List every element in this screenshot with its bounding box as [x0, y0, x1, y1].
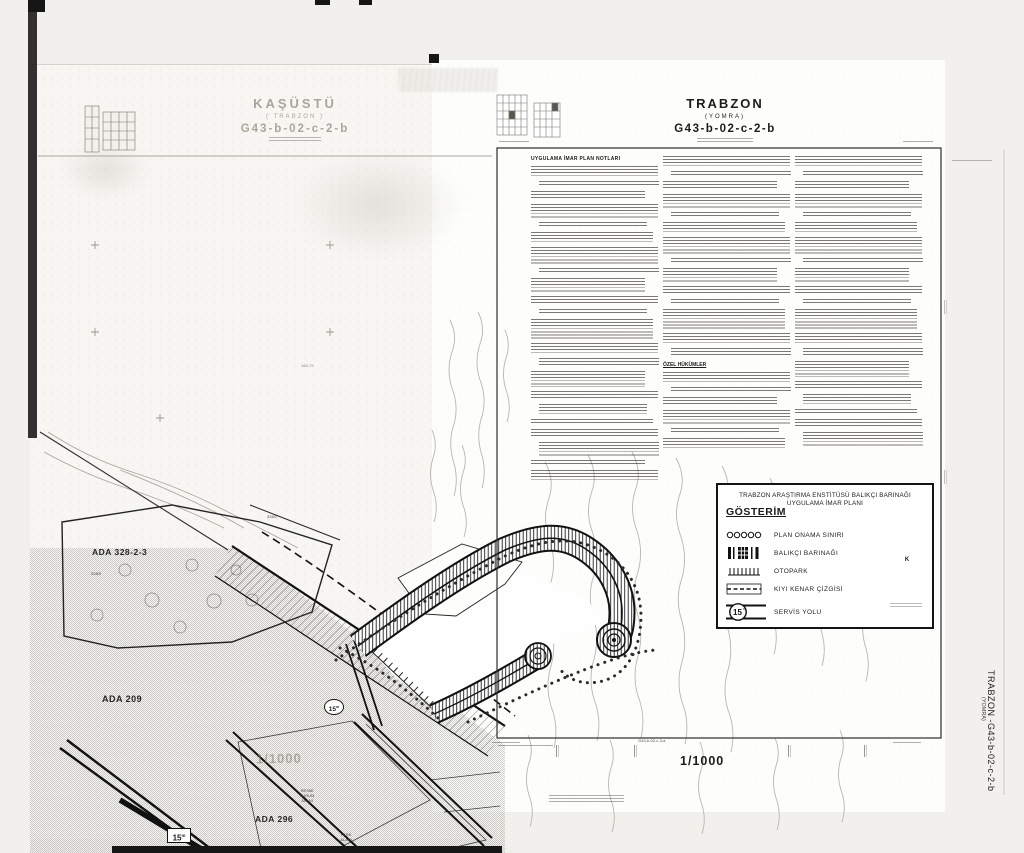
greeked-paragraph: [671, 387, 791, 393]
edge-label-region: (YOMRA): [986, 697, 1010, 703]
parcel-label: 328/3: [91, 572, 101, 577]
plan-notes-text: [531, 166, 659, 481]
greeked-paragraph: [539, 358, 659, 367]
scan-mark: [359, 0, 372, 5]
greeked-paragraph: [663, 309, 785, 329]
border-tick-label: [556, 745, 559, 757]
plan-notes-text: [663, 156, 791, 357]
legend-label: SERVİS YOLU: [774, 609, 822, 616]
greeked-paragraph: [663, 194, 790, 208]
greeked-paragraph: [795, 361, 909, 377]
margin-tick-label: [944, 300, 947, 314]
ada-209-label: ADA 209: [102, 694, 142, 704]
scan-seam: [398, 68, 498, 92]
greeked-paragraph: [671, 171, 791, 177]
greeked-paragraph: [531, 371, 645, 387]
corner-coordinate: [499, 141, 529, 144]
greeked-paragraph: [539, 442, 659, 456]
legend-item-plan-onama: PLAN ONAMA SINIRI: [726, 527, 844, 543]
greeked-paragraph: [803, 432, 923, 446]
greeked-paragraph: [539, 181, 659, 187]
greeked-paragraph: [795, 333, 922, 344]
greeked-paragraph: [531, 247, 658, 264]
greeked-paragraph: [539, 309, 647, 315]
scanned-imar-plan: KAŞÜSTÜ ( TRABZON ) G43-b-02-c-2-b TRABZ…: [0, 0, 1024, 853]
road-width-value: 15: [329, 706, 336, 713]
greeked-paragraph: [795, 309, 917, 329]
greeked-paragraph: [663, 237, 790, 254]
greeked-paragraph: [539, 222, 647, 228]
scan-smudge: [290, 150, 465, 260]
harbor-road-width-badge: 15m: [324, 699, 344, 715]
greeked-paragraph: [663, 286, 790, 295]
greeked-paragraph: [795, 194, 922, 208]
otopark-symbol: [726, 563, 766, 579]
plan-notes-text: [663, 372, 791, 449]
legend-item-kiyi-kenar: KIYI KENAR ÇİZGİSİ: [726, 581, 843, 597]
legend-item-balikci-barinagi: BALIKÇI BARINAĞI: [726, 545, 838, 561]
footnote: [549, 795, 624, 802]
left-sheet-region: ( TRABZON ): [210, 114, 380, 120]
legend-heading: GÖSTERİM: [726, 506, 786, 518]
special-provisions-heading: ÖZEL HÜKÜMLER: [663, 362, 791, 368]
left-sheet-subnote: [269, 137, 321, 141]
greeked-paragraph: [531, 191, 645, 200]
corner-coordinate: [893, 742, 921, 745]
scan-mark: [28, 0, 45, 12]
greeked-paragraph: [663, 156, 790, 167]
legend-box: TRABZON ARAŞTIRMA ENSTİTÜSÜ BALIKÇI BARI…: [716, 483, 934, 629]
balikci-barinagi-symbol: [726, 545, 766, 561]
resmi-kurum-line: ALANI: [293, 799, 321, 804]
edge-label-text: TRABZON -G43-b-02-c-2-b: [986, 670, 996, 792]
ada-328-label: ADA 328-2-3: [92, 547, 147, 557]
greeked-paragraph: [795, 409, 917, 415]
legend-label: OTOPARK: [774, 568, 808, 575]
adjacent-sheet-label: G43-b-02-c-3-a: [638, 739, 665, 744]
left-sheet-title-block: KAŞÜSTÜ ( TRABZON ) G43-b-02-c-2-b: [210, 96, 380, 141]
corner-coordinate: [903, 141, 933, 144]
left-sheet-scale: 1/1000: [256, 751, 302, 767]
ada-296-label: ADA 296: [255, 814, 293, 824]
plan-notes-column-3: [795, 156, 923, 450]
legend-label: KIYI KENAR ÇİZGİSİ: [774, 586, 843, 593]
legend-title-line1: TRABZON ARAŞTIRMA ENSTİTÜSÜ BALIKÇI BARI…: [718, 492, 932, 500]
right-sheet-title: TRABZON: [640, 96, 810, 111]
plan-notes-column-2: ÖZEL HÜKÜMLER: [663, 156, 791, 453]
greeked-paragraph: [795, 419, 922, 428]
greeked-paragraph: [531, 319, 653, 339]
greeked-paragraph: [803, 348, 923, 357]
scan-edge-bar: [28, 0, 37, 438]
right-sheet-region: (YOMRA): [640, 114, 810, 120]
scan-mark: [315, 0, 330, 5]
greeked-paragraph: [531, 419, 653, 425]
greeked-paragraph: [531, 391, 658, 400]
greeked-paragraph: [795, 222, 917, 233]
greeked-paragraph: [803, 258, 923, 264]
greeked-paragraph: [531, 232, 653, 243]
greeked-paragraph: [795, 181, 909, 190]
compass-north-letter: K: [899, 557, 915, 563]
greeked-paragraph: [663, 222, 785, 233]
greeked-paragraph: [531, 429, 658, 438]
greeked-paragraph: [539, 404, 647, 415]
greeked-paragraph: [663, 181, 777, 190]
grid-reference: 165-79: [301, 364, 313, 369]
border-tick-label: [864, 745, 867, 757]
legend-item-servis-yolu: 15 m SERVİS YOLU: [726, 602, 822, 622]
greeked-paragraph: [531, 204, 658, 218]
greeked-paragraph: [671, 299, 779, 305]
greeked-paragraph: [795, 156, 922, 167]
greeked-paragraph: [671, 428, 779, 434]
greeked-paragraph: [795, 286, 922, 295]
greeked-paragraph: [663, 397, 777, 406]
greeked-paragraph: [795, 268, 909, 282]
greeked-paragraph: [803, 171, 923, 177]
road-width-unit: m: [336, 705, 339, 709]
plan-notes-text: [795, 156, 923, 446]
park-alani-label: PARK ALANI: [334, 833, 358, 843]
greeked-paragraph: [531, 296, 658, 305]
plan-notes-heading: UYGULAMA İMAR PLAN NOTLARI: [531, 156, 659, 162]
road-width-badge: 15m: [167, 828, 191, 843]
greeked-paragraph: [663, 372, 790, 383]
greeked-paragraph: [663, 410, 790, 424]
servis-width-value: 15: [733, 608, 742, 617]
resmi-kurum-label: RESMİ KURUM ALANI: [293, 789, 321, 803]
scan-edge-bar-bottom: [112, 846, 502, 853]
greeked-paragraph: [671, 212, 779, 218]
servis-yolu-symbol: 15 m: [726, 602, 766, 622]
left-sheet-title: KAŞÜSTÜ: [210, 96, 380, 111]
margin-note: [952, 160, 992, 163]
greeked-paragraph: [671, 258, 791, 264]
greeked-paragraph: [531, 278, 645, 292]
greeked-paragraph: [671, 348, 791, 357]
plan-notes-column-1: UYGULAMA İMAR PLAN NOTLARI: [531, 156, 659, 485]
kiyi-kenar-symbol: [726, 581, 766, 597]
left-sheet-number: G43-b-02-c-2-b: [210, 123, 380, 135]
legend-label: BALIKÇI BARINAĞI: [774, 550, 838, 557]
greeked-paragraph: [663, 268, 777, 282]
scan-smudge: [60, 140, 150, 200]
border-tick-label: [788, 745, 791, 757]
greeked-paragraph: [803, 212, 911, 218]
greeked-paragraph: [539, 268, 659, 274]
registration-mark: [429, 54, 439, 63]
greeked-paragraph: [531, 343, 658, 354]
greeked-paragraph: [531, 166, 658, 177]
greeked-paragraph: [795, 381, 922, 390]
right-sheet-title-block: TRABZON (YOMRA) G43-b-02-c-2-b: [640, 96, 810, 142]
right-sheet-scale: 1/1000: [680, 754, 724, 768]
margin-tick-label: [944, 470, 947, 484]
right-sheet-number: G43-b-02-c-2-b: [640, 123, 810, 135]
greeked-paragraph: [803, 299, 911, 305]
greeked-paragraph: [663, 333, 790, 344]
road-width-value: 15: [173, 834, 182, 843]
border-tick-label: [634, 745, 637, 757]
road-width-unit: m: [182, 833, 186, 838]
parcel-label: 328/2: [267, 515, 277, 520]
edge-label-region-text: (YOMRA): [980, 697, 986, 721]
compass-caption: [890, 603, 922, 607]
greeked-paragraph: [663, 438, 785, 449]
park-alani-line: ALANI: [334, 838, 358, 843]
legend-label: PLAN ONAMA SINIRI: [774, 532, 844, 539]
right-sheet-subnote: [697, 138, 753, 142]
footnote: [498, 745, 553, 748]
greeked-paragraph: [531, 470, 658, 481]
legend-item-otopark: OTOPARK: [726, 563, 808, 579]
greeked-paragraph: [531, 460, 645, 466]
plan-onama-siniri-symbol: [726, 527, 766, 543]
greeked-paragraph: [795, 237, 922, 254]
edge-label: TRABZON -G43-b-02-c-2-b: [996, 670, 1024, 680]
greeked-paragraph: [803, 394, 911, 405]
